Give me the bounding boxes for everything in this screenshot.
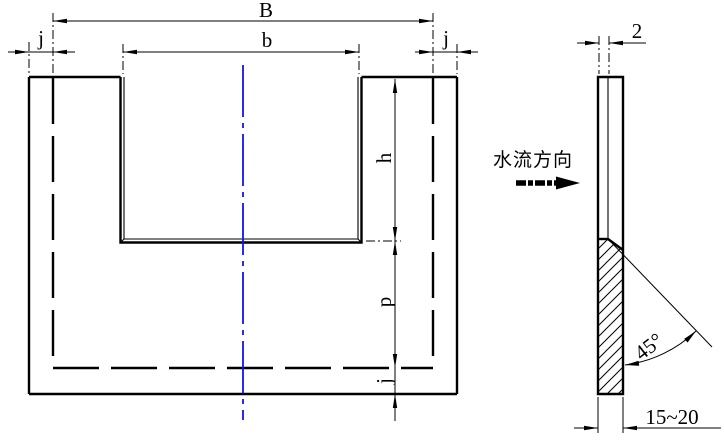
crest-dim-arrow-right xyxy=(609,41,623,45)
drawing-canvas: B b j j h p j 45° xyxy=(0,0,724,443)
dim-label-j-bottom: j xyxy=(372,378,396,385)
flow-arrow-head xyxy=(556,177,580,190)
front-view: B b j j h p j xyxy=(8,0,478,421)
thickness-dim-arrow-right xyxy=(623,426,637,430)
flow-direction: 水流方向 xyxy=(493,149,580,190)
dim-label-p: p xyxy=(372,297,396,308)
dim-label-b: b xyxy=(262,28,273,52)
dim-label-15-20: 15~20 xyxy=(645,405,698,429)
angle-arrow-plate xyxy=(625,361,639,366)
side-view: 45° 2 15~20 水流方向 xyxy=(493,19,721,433)
thickness-dim-arrow-left xyxy=(584,426,598,430)
weir-plate-drawing: B b j j h p j 45° xyxy=(0,0,724,443)
dim-label-2: 2 xyxy=(632,19,643,43)
dim-label-j-top-left: j xyxy=(37,26,44,50)
angle-dimension: 45° xyxy=(625,328,696,366)
crest-dim-arrow-left xyxy=(585,41,599,45)
section-hatch xyxy=(598,240,623,393)
notch-outline xyxy=(121,77,362,243)
dim-label-j-top-right: j xyxy=(442,26,449,50)
flow-direction-label: 水流方向 xyxy=(493,149,573,171)
dim-label-h: h xyxy=(372,152,396,163)
angle-arrow-line xyxy=(684,331,696,343)
bevel-extension-line xyxy=(610,241,712,347)
dim-label-B: B xyxy=(259,0,273,22)
dim-label-45deg: 45° xyxy=(630,328,668,365)
